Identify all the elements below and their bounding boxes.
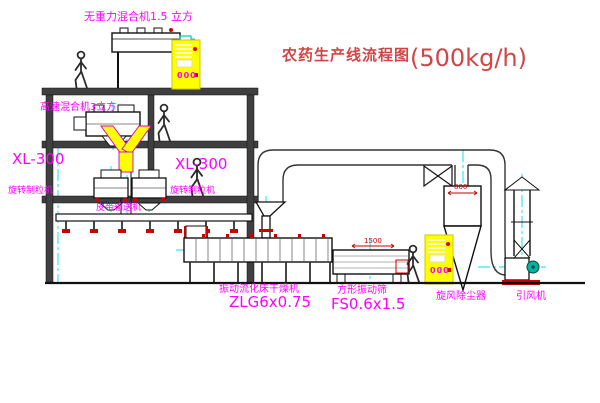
square-sieve — [333, 244, 409, 283]
label-cyclone: 旋风除尘器 — [436, 292, 486, 302]
butterfly-valve — [424, 166, 452, 186]
pipe-flange — [259, 229, 273, 232]
cabinet-display-1: 000 — [177, 72, 197, 80]
rotary-granulator-1 — [94, 170, 128, 201]
worker-icon — [76, 52, 88, 88]
rain-cap — [505, 177, 539, 190]
conveyor-feet — [62, 229, 238, 233]
label-fan: 引风机 — [516, 292, 546, 302]
title-capacity: (500kg/h) — [410, 44, 527, 72]
control-cabinet-2 — [425, 235, 453, 284]
duct-reducer — [256, 202, 285, 238]
diagram-title: 农药生产线流程图(500kg/h) — [282, 44, 527, 72]
dimension-sieve: 1500 — [364, 238, 382, 245]
label-granulator-model-mid: XL-300 — [175, 157, 227, 172]
flow-diagram-canvas: 农药生产线流程图(500kg/h) 无重力混合机1.5 立方 高速混合机3立方 … — [0, 0, 600, 403]
indicator-dot — [169, 28, 173, 32]
cabinet-display-2: 000 — [430, 267, 450, 275]
induced-draft-fan — [502, 258, 540, 285]
label-granulator-model-left: XL-300 — [12, 152, 64, 167]
label-cube-mixer: 无重力混合机1.5 立方 — [84, 11, 193, 22]
dimension-cyclone: 800 — [454, 184, 467, 191]
title-text: 农药生产线流程图 — [282, 46, 410, 64]
label-granulator-mid: 旋转制粒机 — [170, 187, 215, 196]
label-belt-conveyor: 皮带输送机 — [96, 204, 141, 213]
mixer-motor — [74, 117, 86, 130]
floor-beam — [42, 88, 258, 95]
label-granulator-left: 旋转制粒机 — [8, 187, 53, 196]
dryer-legs — [190, 262, 330, 282]
control-cabinet-1 — [172, 40, 200, 89]
rotary-granulator-2 — [132, 170, 166, 201]
label-dryer-model: ZLG6x0.75 — [229, 295, 311, 310]
worker-icon — [159, 105, 171, 141]
label-sieve-model: FS0.6x1.5 — [331, 297, 405, 312]
label-high-speed-mixer: 高速混合机3立方 — [40, 103, 116, 113]
belt-conveyor — [56, 214, 252, 233]
